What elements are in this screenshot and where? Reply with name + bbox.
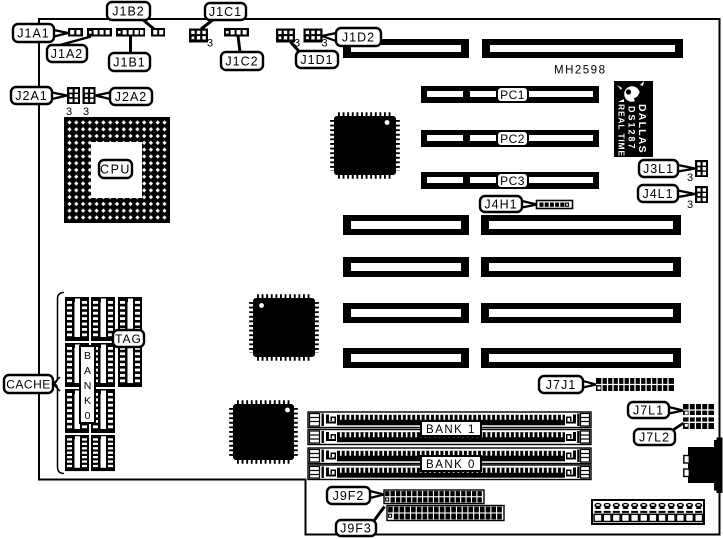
svg-text:MH2598: MH2598 [554, 65, 606, 77]
svg-text:J1D2: J1D2 [342, 31, 375, 45]
svg-text:BANK 0: BANK 0 [426, 459, 476, 471]
svg-text:J4H1: J4H1 [484, 198, 517, 212]
svg-text:J9F3: J9F3 [340, 522, 372, 536]
svg-text:J1B2: J1B2 [112, 5, 145, 19]
svg-text:3: 3 [83, 106, 89, 118]
svg-text:0: 0 [85, 410, 91, 422]
svg-text:B: B [84, 350, 91, 362]
svg-text:J9F2: J9F2 [333, 489, 365, 503]
svg-text:J7L2: J7L2 [639, 431, 670, 445]
svg-text:J4L1: J4L1 [642, 187, 673, 201]
svg-text:J1A1: J1A1 [17, 27, 50, 41]
svg-text:J1B1: J1B1 [113, 56, 146, 70]
svg-text:J1C1: J1C1 [209, 5, 242, 19]
svg-text:J2A2: J2A2 [115, 90, 148, 104]
svg-text:3: 3 [687, 199, 693, 211]
svg-text:K: K [84, 395, 91, 407]
svg-text:TAG: TAG [115, 332, 142, 346]
svg-text:3: 3 [207, 38, 213, 50]
svg-text:3: 3 [687, 172, 693, 184]
svg-text:CACHE: CACHE [6, 378, 51, 392]
svg-text:DS1287: DS1287 [627, 106, 637, 151]
svg-text:J1D1: J1D1 [300, 53, 333, 67]
svg-text:DALLAS: DALLAS [636, 104, 648, 154]
svg-text:J1C2: J1C2 [225, 55, 258, 69]
svg-text:J2A1: J2A1 [15, 89, 48, 103]
svg-text:J3L1: J3L1 [643, 162, 674, 176]
svg-text:3: 3 [322, 38, 328, 50]
svg-text:PC1: PC1 [500, 88, 525, 102]
svg-text:3: 3 [66, 106, 72, 118]
svg-text:PC2: PC2 [500, 132, 525, 146]
svg-text:N: N [84, 380, 92, 392]
svg-text:CPU: CPU [100, 163, 131, 177]
svg-text:J1A2: J1A2 [51, 47, 84, 61]
svg-text:BANK 1: BANK 1 [426, 424, 476, 436]
svg-text:J7J1: J7J1 [546, 378, 576, 392]
svg-text:PC3: PC3 [500, 174, 525, 188]
svg-text:J7L1: J7L1 [633, 404, 664, 418]
svg-text:REAL TIME: REAL TIME [617, 104, 627, 157]
svg-text:A: A [84, 365, 91, 377]
